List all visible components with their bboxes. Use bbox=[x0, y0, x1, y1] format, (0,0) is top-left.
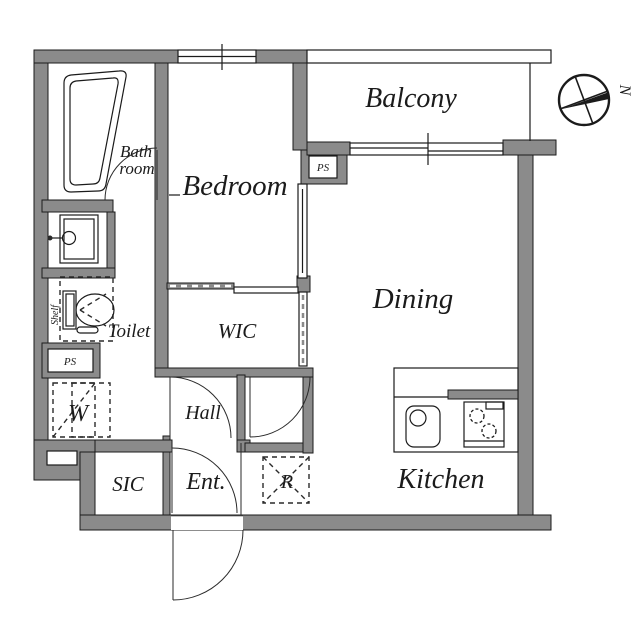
bedroom-wic-slider-b bbox=[234, 287, 298, 293]
compass-north-label: N bbox=[616, 84, 633, 97]
counter-wall-stub bbox=[448, 390, 518, 399]
label-kitchen: Kitchen bbox=[396, 464, 484, 495]
wall-bedroom-balcony bbox=[293, 63, 307, 150]
label-bath-line2: room bbox=[119, 159, 154, 178]
label-hall: Hall bbox=[184, 402, 221, 424]
washbasin-faucet-knob bbox=[48, 236, 53, 241]
label-toilet: Toilet bbox=[108, 321, 151, 342]
wall-dining-top-left bbox=[307, 142, 350, 155]
label-refrigerator: R bbox=[280, 471, 293, 493]
wall-dining-top-right bbox=[503, 140, 556, 155]
toilet-dashed-enclosure bbox=[60, 277, 113, 341]
wall-fridge-nook-top bbox=[245, 443, 308, 452]
wall-bath-bottom bbox=[42, 200, 113, 212]
entrance-opening bbox=[171, 515, 243, 530]
floor-plan-svg: N Balcony Bedroom Dining Kitchen Bath ro… bbox=[0, 0, 640, 640]
balcony-sliding-window bbox=[350, 143, 503, 155]
balcony-railing-top bbox=[307, 50, 551, 63]
floor-plan: N Balcony Bedroom Dining Kitchen Bath ro… bbox=[0, 0, 640, 640]
label-washer: W bbox=[68, 401, 90, 427]
label-entrance: Ent. bbox=[185, 469, 225, 495]
toilet-tank-inner bbox=[66, 294, 74, 326]
label-bedroom: Bedroom bbox=[182, 170, 287, 202]
washbasin bbox=[48, 215, 99, 263]
wall-washroom-right bbox=[107, 212, 115, 268]
wall-sic-top bbox=[95, 440, 172, 452]
label-dining: Dining bbox=[372, 283, 454, 315]
toilet bbox=[60, 277, 114, 341]
wall-wic-bottom bbox=[155, 368, 313, 377]
wall-top bbox=[34, 50, 307, 63]
bathtub-inner bbox=[70, 78, 118, 185]
niche-box bbox=[47, 451, 77, 465]
toilet-base bbox=[77, 327, 98, 333]
hall-dining-door-arc bbox=[250, 377, 310, 437]
label-balcony: Balcony bbox=[365, 83, 457, 114]
label-wic: WIC bbox=[218, 319, 257, 343]
wic-dining-sliding-door bbox=[299, 292, 307, 366]
washbasin-outer bbox=[60, 215, 98, 263]
kitchen-counter bbox=[394, 368, 518, 452]
label-shelf: Shelf bbox=[50, 304, 61, 325]
wall-bedroom-left bbox=[155, 63, 168, 368]
wall-sic-right bbox=[163, 452, 170, 515]
counter-outline bbox=[394, 368, 518, 452]
washbasin-inner bbox=[64, 219, 94, 259]
wall-dining-left-lower bbox=[303, 377, 313, 453]
wall-bottom bbox=[80, 515, 551, 530]
compass: N bbox=[559, 75, 633, 125]
label-ps-left: PS bbox=[63, 356, 77, 368]
wall-dining-right bbox=[518, 155, 533, 515]
entrance-door-arc bbox=[173, 530, 243, 600]
bedroom-wic-slider-a bbox=[167, 283, 234, 289]
bathtub bbox=[64, 71, 126, 192]
wall-hall-right bbox=[237, 375, 245, 440]
label-ps-balcony: PS bbox=[316, 162, 330, 174]
label-sic: SIC bbox=[112, 472, 144, 496]
